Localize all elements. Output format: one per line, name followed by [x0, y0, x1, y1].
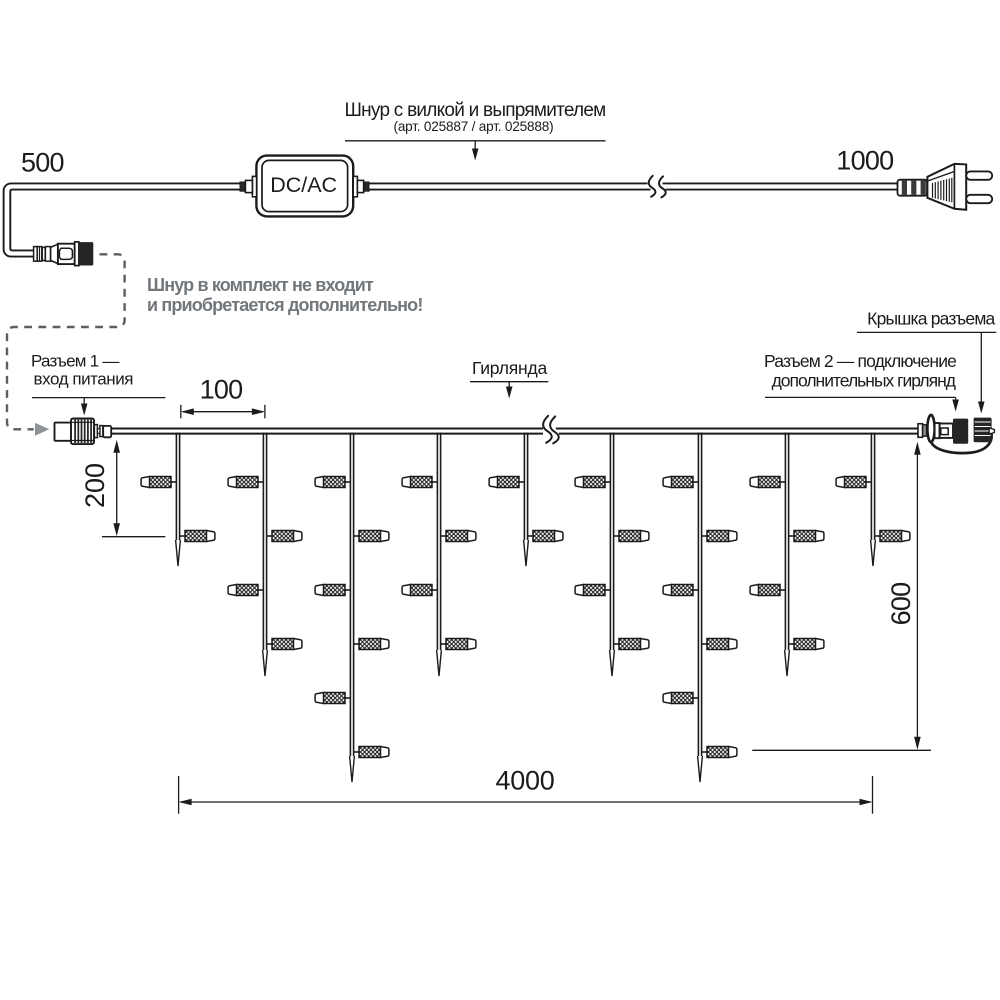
svg-text:Разъем 2 — подключение: Разъем 2 — подключение: [764, 351, 956, 371]
svg-text:дополнительных гирлянд: дополнительных гирлянд: [772, 370, 956, 390]
svg-text:вход питания: вход питания: [34, 370, 134, 389]
svg-text:Разъем 1 —: Разъем 1 —: [31, 351, 119, 370]
svg-text:(арт. 025887 / арт. 025888): (арт. 025887 / арт. 025888): [394, 119, 554, 134]
svg-text:Шнур в комплект не входит: Шнур в комплект не входит: [147, 275, 374, 295]
svg-text:Крышка разъема: Крышка разъема: [867, 309, 995, 329]
svg-text:Гирлянда: Гирлянда: [472, 358, 548, 378]
svg-text:100: 100: [200, 375, 243, 405]
svg-text:600: 600: [886, 583, 916, 626]
svg-text:1000: 1000: [836, 146, 893, 176]
svg-text:200: 200: [80, 463, 110, 508]
svg-text:DC/AC: DC/AC: [270, 173, 337, 197]
svg-text:и приобретается дополнительно!: и приобретается дополнительно!: [147, 295, 422, 315]
svg-text:Шнур с вилкой и выпрямителем: Шнур с вилкой и выпрямителем: [345, 100, 606, 121]
svg-text:4000: 4000: [496, 765, 555, 795]
svg-text:500: 500: [21, 147, 64, 177]
